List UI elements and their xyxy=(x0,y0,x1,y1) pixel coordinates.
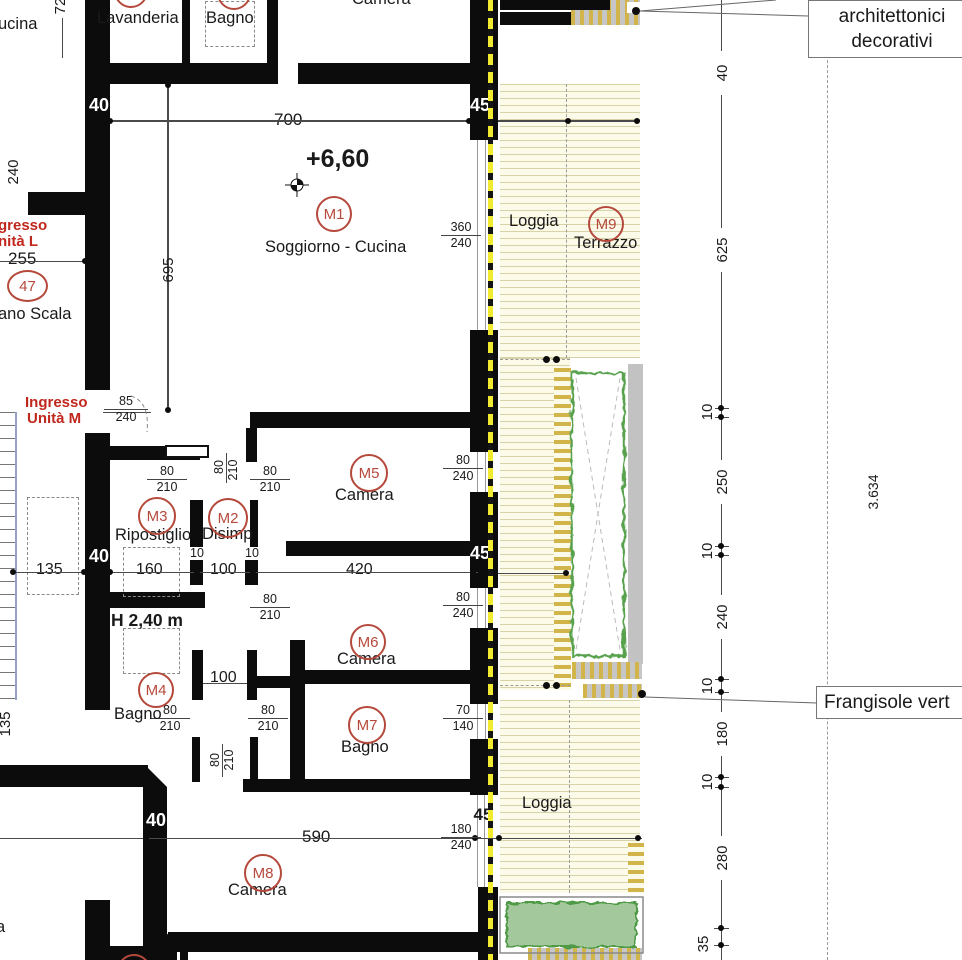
chain-label-10: 10 xyxy=(699,664,715,708)
chain-label-180: 180 xyxy=(714,712,730,756)
window-frame xyxy=(485,704,486,739)
tag-m3-label: M3 xyxy=(147,508,168,525)
entrance-label-m2: Unità M xyxy=(27,411,81,427)
wall xyxy=(28,192,110,215)
dim-dot xyxy=(470,569,476,575)
window-dim-80-240: 80240 xyxy=(443,453,483,484)
wall xyxy=(192,650,203,700)
chain-label-250: 250 xyxy=(714,460,730,504)
tag-47-label: 47 xyxy=(19,278,36,295)
tag-m2-label: M2 xyxy=(218,510,239,527)
entrance-label-m: Ingresso xyxy=(25,395,88,411)
dim-dot xyxy=(466,118,472,124)
wall-label-40: 40 xyxy=(82,546,116,567)
wall-stub xyxy=(500,0,610,10)
dim-dot xyxy=(107,569,113,575)
dim-line-100 xyxy=(203,683,247,684)
wall xyxy=(168,932,478,952)
dim-dot xyxy=(718,543,724,549)
facade-dashed-line xyxy=(488,0,493,960)
chain-label-35: 35 xyxy=(695,922,711,960)
tag-m5: M5 xyxy=(350,454,388,492)
chain-label-10: 10 xyxy=(699,760,715,804)
chain-label-10: 10 xyxy=(699,529,715,573)
tag-m1: M1 xyxy=(316,196,352,232)
door-leaf xyxy=(243,779,287,786)
callout-frangisole-label: Frangisole vert xyxy=(824,690,962,715)
door-dim-210: 210 xyxy=(221,738,237,782)
dim-dot xyxy=(10,569,16,575)
chain-label-40: 40 xyxy=(714,51,730,95)
wall xyxy=(247,650,257,700)
wall xyxy=(246,428,257,462)
dim-line-700 xyxy=(110,120,470,122)
tag-m1-label: M1 xyxy=(324,206,345,223)
dim-420: 420 xyxy=(344,562,375,579)
deck-dot xyxy=(553,682,560,689)
dim-dot xyxy=(718,942,724,948)
wall xyxy=(252,676,290,688)
wall xyxy=(470,0,498,140)
dim-255: 255 xyxy=(6,250,38,268)
dim-dot xyxy=(718,676,724,682)
dim-label-72: 72 xyxy=(52,0,68,28)
comb-strip-loggia2 xyxy=(628,843,644,893)
tag-m7: M7 xyxy=(348,706,386,744)
callout-line-2: decorativi xyxy=(813,29,962,54)
dim-dot xyxy=(718,405,724,411)
wall xyxy=(470,628,498,704)
wall xyxy=(145,765,167,787)
wall xyxy=(182,0,190,63)
wall-label-40: 40 xyxy=(82,95,116,116)
dim-dot xyxy=(634,118,640,124)
dim-dot xyxy=(107,118,113,124)
deck-dot xyxy=(543,682,550,689)
loggia-center-dashed-line xyxy=(566,84,567,358)
door-dim-80-210: 80210 xyxy=(250,464,290,495)
tag-m7-label: M7 xyxy=(357,717,378,734)
decorative-comb-mid-b xyxy=(583,684,642,698)
deck-dot xyxy=(553,356,560,363)
wall-label-40: 40 xyxy=(139,810,173,831)
floor-plan-canvas: 695 72 240 135 40 625 10 250 10 240 10 1… xyxy=(0,0,962,960)
wall xyxy=(470,330,498,452)
tag-m8-label: M8 xyxy=(253,865,274,882)
furniture-dashed-rect xyxy=(123,628,180,674)
tag-m9-label: M9 xyxy=(596,216,617,233)
door-dim-80-210: 80210 xyxy=(250,592,290,623)
room-label-lavanderia: Lavanderia xyxy=(97,10,179,27)
wall xyxy=(267,0,278,63)
dim-dot xyxy=(496,835,502,841)
entrance-label-l2: nità L xyxy=(0,234,38,250)
dim-line-255 xyxy=(0,261,87,262)
height-note: H 2,40 m xyxy=(111,611,183,629)
dim-dot xyxy=(563,570,569,576)
callout-architettonici: architettonici decorativi xyxy=(808,0,962,58)
window-dim-80-240: 80240 xyxy=(443,590,483,621)
dim-dot xyxy=(165,407,171,413)
wall xyxy=(286,541,478,556)
dim-label-135-edge: 135 xyxy=(0,702,13,746)
dim-dot xyxy=(718,689,724,695)
wall xyxy=(250,412,478,428)
tag-m6: M6 xyxy=(350,624,386,660)
tag-partial-top-1 xyxy=(114,0,148,8)
entry-dim-85-240: 85240 xyxy=(104,394,148,425)
dim-dot xyxy=(165,82,171,88)
dim-dot xyxy=(143,835,149,841)
chain-label-10: 10 xyxy=(699,390,715,434)
dim-line-134-mid xyxy=(498,573,568,574)
window-dim-180-240: 180240 xyxy=(441,822,481,853)
tag-m4: M4 xyxy=(138,672,174,708)
door-dim-80-210: 80210 xyxy=(147,464,187,495)
dim-label-240-edge: 240 xyxy=(5,150,21,194)
room-label-soggiorno: Soggiorno - Cucina xyxy=(265,239,406,256)
partial-text-a: a xyxy=(0,919,5,936)
tag-m3: M3 xyxy=(138,497,176,535)
tag-m5-label: M5 xyxy=(359,465,380,482)
chain-label-240: 240 xyxy=(714,595,730,639)
dim-line-135 xyxy=(13,572,85,573)
door-leaf xyxy=(165,445,209,458)
leader-dot xyxy=(632,7,640,15)
room-label-bagno-m4: Bagno xyxy=(114,706,162,723)
dim-dot xyxy=(82,258,88,264)
dim-dot xyxy=(565,118,571,124)
wall xyxy=(250,737,258,782)
room-label-loggia2: Loggia xyxy=(522,795,572,812)
wall-thickness-10: 10 xyxy=(188,547,206,560)
dim-dot xyxy=(718,925,724,931)
tag-m9: M9 xyxy=(588,206,624,242)
construction-dashed-line xyxy=(827,0,828,960)
level-marker-icon xyxy=(285,173,309,197)
dim-100: 100 xyxy=(208,562,239,579)
dim-dot xyxy=(81,569,87,575)
dim-590: 590 xyxy=(300,828,332,846)
door-dim-210: 210 xyxy=(225,448,241,492)
deck-dot xyxy=(543,356,550,363)
dim-dot xyxy=(718,414,724,420)
tag-m4-label: M4 xyxy=(146,682,167,699)
tag-m8: M8 xyxy=(244,854,282,892)
dim-dot xyxy=(718,552,724,558)
dim-dot xyxy=(250,569,256,575)
dim-100: 100 xyxy=(208,670,239,687)
leader-dot xyxy=(638,690,646,698)
callout-frangisole: Frangisole vert xyxy=(816,686,962,719)
overall-dim-3634: 3.634 xyxy=(865,464,881,520)
dim-line-590-269 xyxy=(0,838,642,839)
wall-thickness-10: 10 xyxy=(243,547,261,560)
entrance-label-l: gresso xyxy=(0,218,47,234)
furniture-dashed-rect xyxy=(27,497,79,595)
wall xyxy=(0,765,148,787)
tag-47: 47 xyxy=(7,270,48,302)
window-frame xyxy=(485,140,486,330)
dim-dot xyxy=(718,774,724,780)
dim-dot xyxy=(635,835,641,841)
room-label-loggia: Loggia xyxy=(509,213,559,230)
staircase-treads xyxy=(0,412,17,700)
level-quota: +6,60 xyxy=(306,146,369,172)
window-frame xyxy=(485,452,486,492)
dim-line-row xyxy=(110,572,478,573)
room-label-cucina: ucina xyxy=(0,16,37,33)
wall xyxy=(192,737,200,782)
tag-m6-label: M6 xyxy=(358,634,379,651)
wall xyxy=(305,670,478,684)
chain-label-280: 280 xyxy=(714,836,730,880)
dim-dot xyxy=(718,784,724,790)
room-label-camera-top: Camera xyxy=(352,0,411,8)
window-frame xyxy=(485,588,486,628)
tag-m2: M2 xyxy=(208,498,248,538)
door-dim-80-210: 80210 xyxy=(248,703,288,734)
decorative-comb-mid-a xyxy=(572,662,642,679)
door-opening xyxy=(278,63,298,84)
wall-stub xyxy=(500,12,571,25)
dim-dot xyxy=(194,569,200,575)
window-dim-360-240: 360240 xyxy=(441,220,481,251)
wall xyxy=(290,640,305,787)
hedge-plan-icon xyxy=(564,364,638,664)
label-piano-scala: ano Scala xyxy=(0,306,71,323)
dim-label-695: 695 xyxy=(160,248,176,292)
window-dim-70-140: 70140 xyxy=(443,703,483,734)
chain-label-625: 625 xyxy=(714,228,730,272)
callout-line-1: architettonici xyxy=(813,4,962,29)
planter-plan-icon xyxy=(498,894,646,958)
